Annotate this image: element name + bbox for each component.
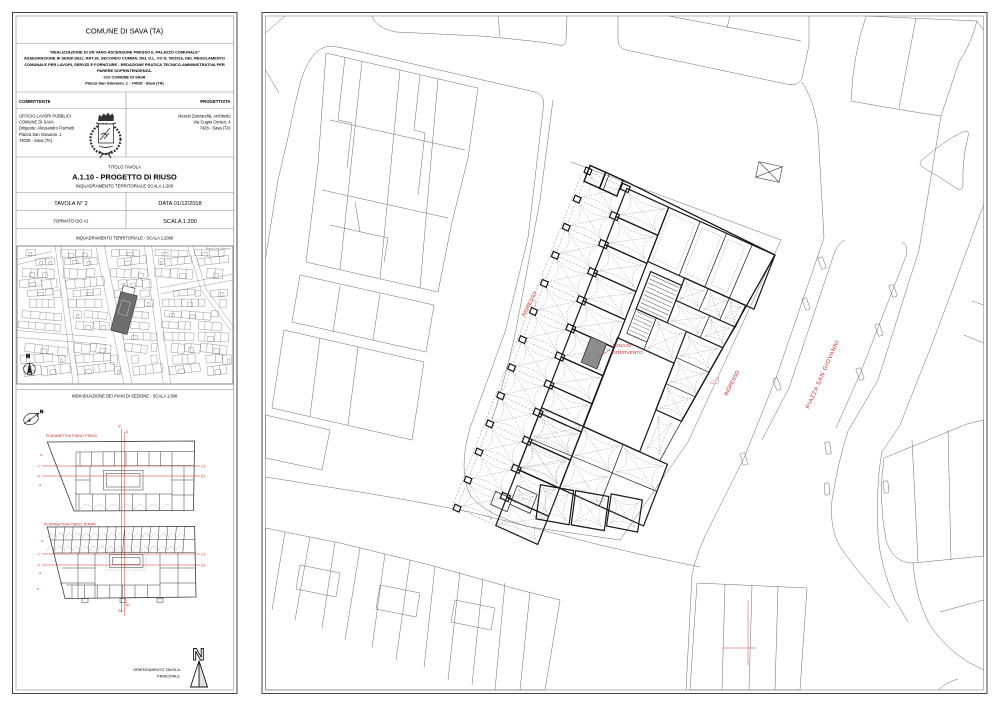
svg-text:COMUNALE PER LAVORI, SERVIZI E: COMUNALE PER LAVORI, SERVIZI E FORNITURE… [24, 62, 225, 67]
svg-text:D1: D1 [201, 563, 205, 567]
svg-text:Alessio Zanzarella, Architetto: Alessio Zanzarella, Architetto [178, 114, 232, 119]
svg-text:COMMITTENTE: COMMITTENTE [19, 99, 51, 104]
svg-text:PLANIMETRIA PIANO TERRA: PLANIMETRIA PIANO TERRA [44, 523, 96, 527]
svg-text:C1: C1 [201, 552, 205, 556]
svg-text:SCALA 1:200: SCALA 1:200 [163, 219, 197, 225]
svg-text:7428 - Sava (TA): 7428 - Sava (TA) [200, 126, 232, 131]
svg-text:FORMATO ISO A1: FORMATO ISO A1 [54, 219, 90, 224]
svg-text:Piazza San Giovanni, 1: Piazza San Giovanni, 1 [19, 132, 62, 137]
svg-text:PRINCIPALE: PRINCIPALE [157, 674, 180, 679]
svg-text:"REALIZZAZIONE DI UN VANO ASCE: "REALIZZAZIONE DI UN VANO ASCENSORE PRES… [49, 50, 200, 55]
svg-text:COMUNE DI SAVA: COMUNE DI SAVA [19, 120, 54, 125]
svg-text:15: 15 [40, 455, 43, 457]
svg-text:A.1.10 - PROGETTO DI RIUSO: A.1.10 - PROGETTO DI RIUSO [72, 173, 177, 182]
svg-text:INQUADRAMENTO TERRITORIALE SCA: INQUADRAMENTO TERRITORIALE SCALA 1:200 [76, 184, 174, 189]
svg-text:ORIENTAMENTO TAVOLA: ORIENTAMENTO TAVOLA [133, 667, 180, 672]
svg-text:C: C [38, 464, 41, 468]
svg-text:B: B [119, 425, 122, 429]
svg-text:Dirigente: Alessandro Fischett: Dirigente: Alessandro Fischetti [19, 126, 74, 131]
svg-text:ZONA DI: ZONA DI [612, 343, 631, 349]
svg-text:C: C [38, 552, 41, 556]
svg-text:INGRESSO: INGRESSO [723, 370, 741, 397]
svg-text:INDIVIDUAZIONE DEI PIANI DI SE: INDIVIDUAZIONE DEI PIANI DI SEZIONE - SC… [72, 394, 178, 399]
svg-text:74028 - Sava (TA): 74028 - Sava (TA) [19, 138, 53, 143]
svg-text:INTERVENTO: INTERVENTO [612, 350, 643, 356]
svg-text:UFFICIO LAVORI PUBBLICI: UFFICIO LAVORI PUBBLICI [19, 114, 71, 119]
svg-text:PROGETTISTA: PROGETTISTA [200, 99, 230, 104]
svg-text:15: 15 [39, 573, 42, 575]
svg-text:C1: C1 [201, 464, 205, 468]
svg-text:15: 15 [37, 589, 40, 591]
svg-text:Piazza San Giovanni: Piazza San Giovanni [206, 247, 231, 251]
svg-text:INQUADRAMENTO TERRITORIALE - S: INQUADRAMENTO TERRITORIALE - SCALA 1:200… [76, 236, 174, 241]
svg-text:COMUNE DI SAVA (TA): COMUNE DI SAVA (TA) [86, 27, 163, 36]
svg-text:B1: B1 [119, 609, 123, 613]
svg-text:ASSEGNAZIONE AI SENSI DELL'ART: ASSEGNAZIONE AI SENSI DELL'ART.36, SECON… [24, 56, 225, 61]
svg-text:PIAZZA SAN GIOVANNI: PIAZZA SAN GIOVANNI [805, 339, 841, 409]
svg-text:N: N [40, 409, 43, 414]
svg-text:D1: D1 [201, 474, 205, 478]
svg-text:C/O COMUNE DI SAVA: C/O COMUNE DI SAVA [103, 74, 145, 79]
svg-text:PLANIMETRIA PIANO PRIMO: PLANIMETRIA PIANO PRIMO [46, 434, 98, 438]
svg-text:D: D [38, 563, 41, 567]
svg-text:Via Cugini Cimieri, 4: Via Cugini Cimieri, 4 [193, 120, 231, 125]
svg-text:15: 15 [39, 485, 42, 487]
svg-text:N: N [26, 354, 30, 360]
svg-text:TAVOLA N° 2: TAVOLA N° 2 [54, 201, 87, 207]
svg-text:A: A [126, 430, 129, 434]
svg-text:TITOLO TAVOLA: TITOLO TAVOLA [108, 165, 141, 170]
svg-text:PARERE SOPRINTENDENZA.: PARERE SOPRINTENDENZA. [97, 68, 152, 73]
svg-text:D: D [38, 474, 41, 478]
svg-text:Piazza San Giovanni, 1 - 74028: Piazza San Giovanni, 1 - 74028 - Sava (T… [85, 81, 164, 86]
svg-text:A1: A1 [126, 603, 130, 607]
svg-text:15: 15 [41, 541, 44, 543]
svg-text:DATA 01/12/2018: DATA 01/12/2018 [158, 201, 201, 207]
